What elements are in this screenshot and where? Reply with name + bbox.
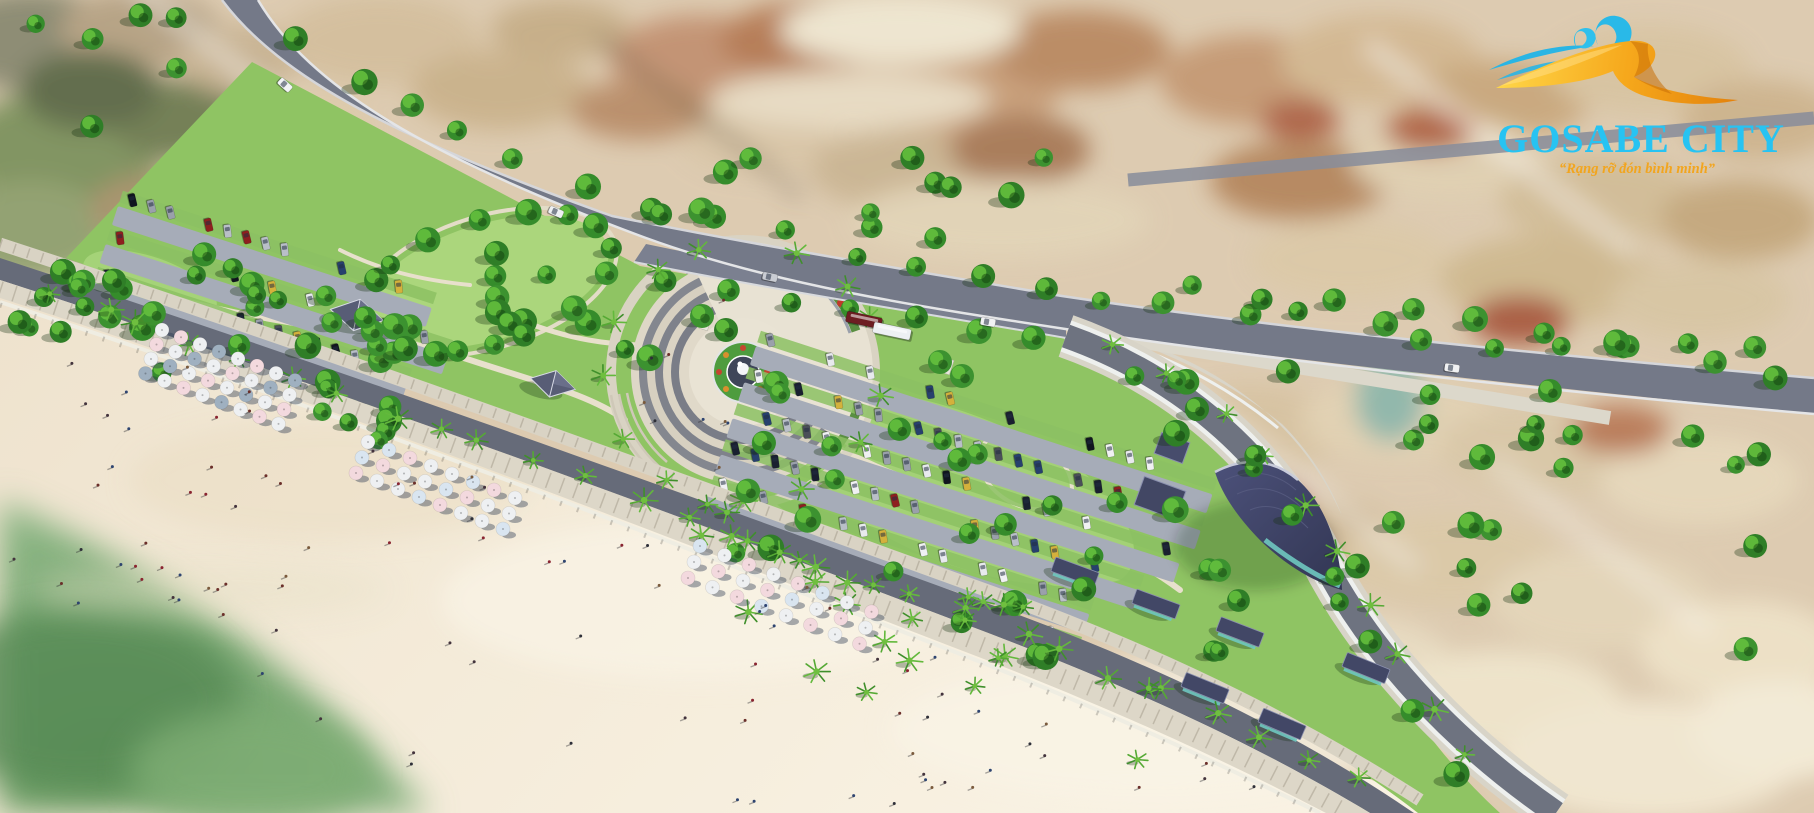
parked-car [279, 242, 289, 257]
parked-car [1145, 456, 1155, 471]
logo-tagline: “Rạng rỡ đón bình minh” [1559, 161, 1716, 177]
parked-car [394, 279, 403, 294]
parked-car [873, 407, 882, 422]
aerial-masterplan-render: GOSABE CITY “Rạng rỡ đón bình minh” [0, 0, 1814, 813]
parked-car [1021, 495, 1031, 510]
gosabe-city-scene: GOSABE CITY “Rạng rỡ đón bình minh” [0, 0, 1814, 813]
logo-title: GOSABE CITY [1497, 116, 1785, 161]
parked-car [1038, 581, 1048, 596]
